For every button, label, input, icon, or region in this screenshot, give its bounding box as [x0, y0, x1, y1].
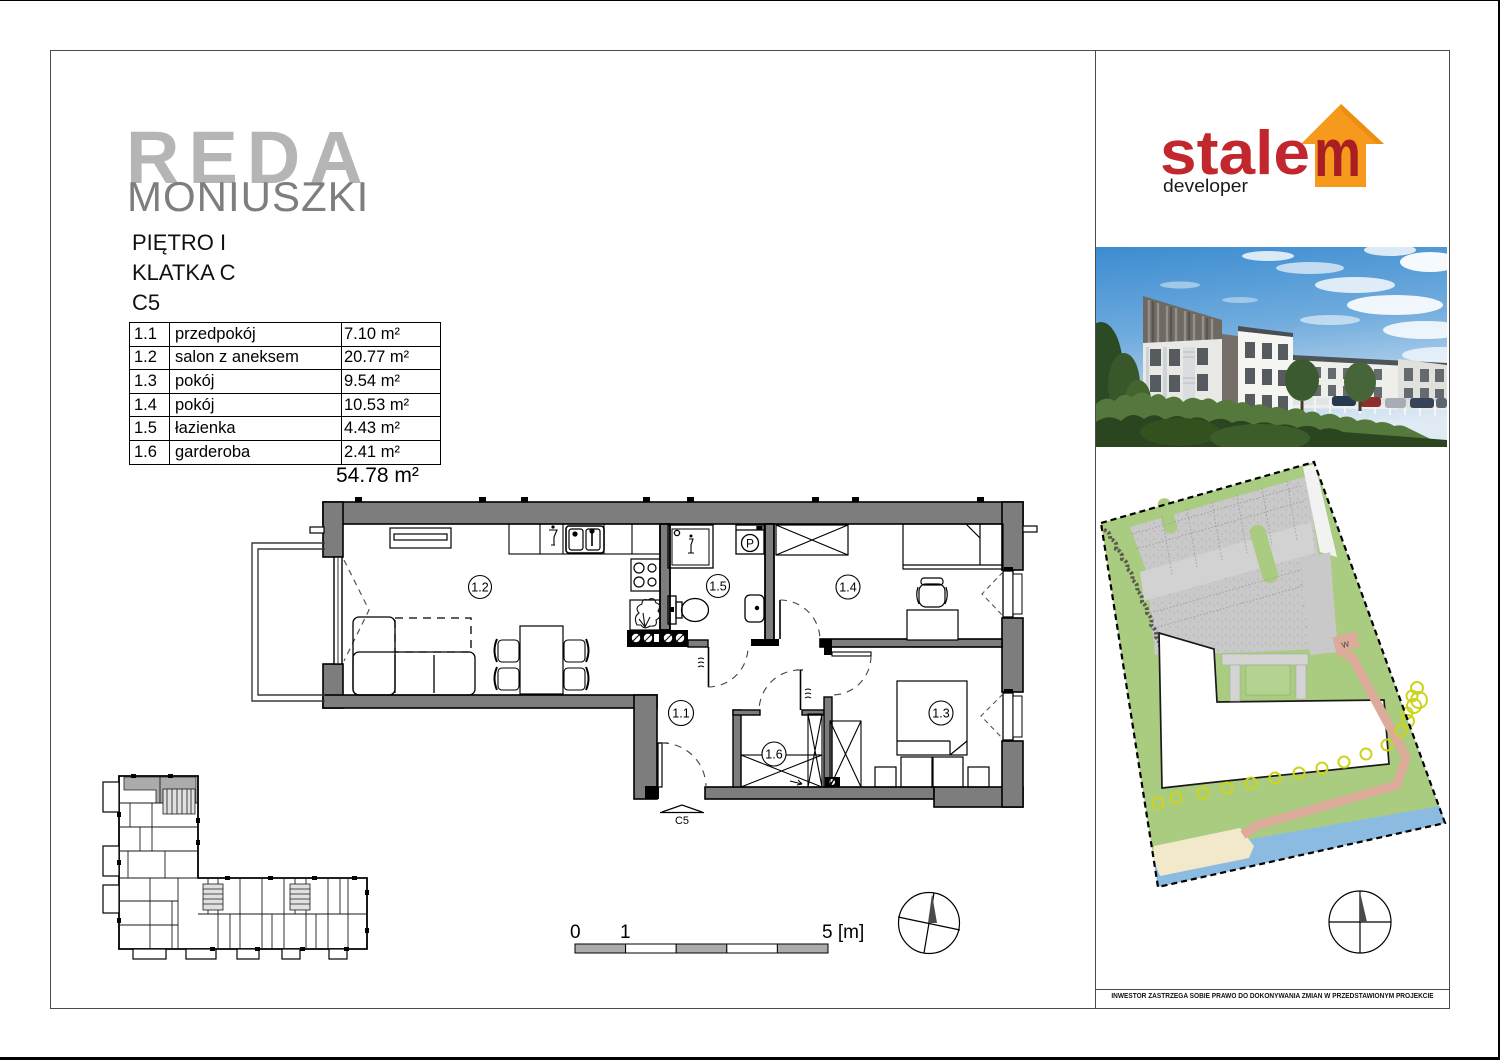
svg-text:1.6: 1.6	[765, 748, 782, 762]
svg-text:0: 0	[570, 922, 581, 943]
svg-text:1.4: 1.4	[839, 581, 856, 595]
svg-text:1.5: 1.5	[709, 580, 726, 594]
svg-text:1.2: 1.2	[471, 581, 488, 595]
svg-text:5 [m]: 5 [m]	[822, 922, 864, 943]
svg-text:developer: developer	[1163, 176, 1248, 196]
svg-text:m: m	[1314, 115, 1361, 191]
svg-text:1.3: 1.3	[932, 707, 949, 721]
svg-text:C5: C5	[675, 815, 689, 827]
svg-text:P: P	[746, 537, 754, 551]
svg-text:1.1: 1.1	[672, 707, 689, 721]
svg-text:1: 1	[620, 922, 631, 943]
